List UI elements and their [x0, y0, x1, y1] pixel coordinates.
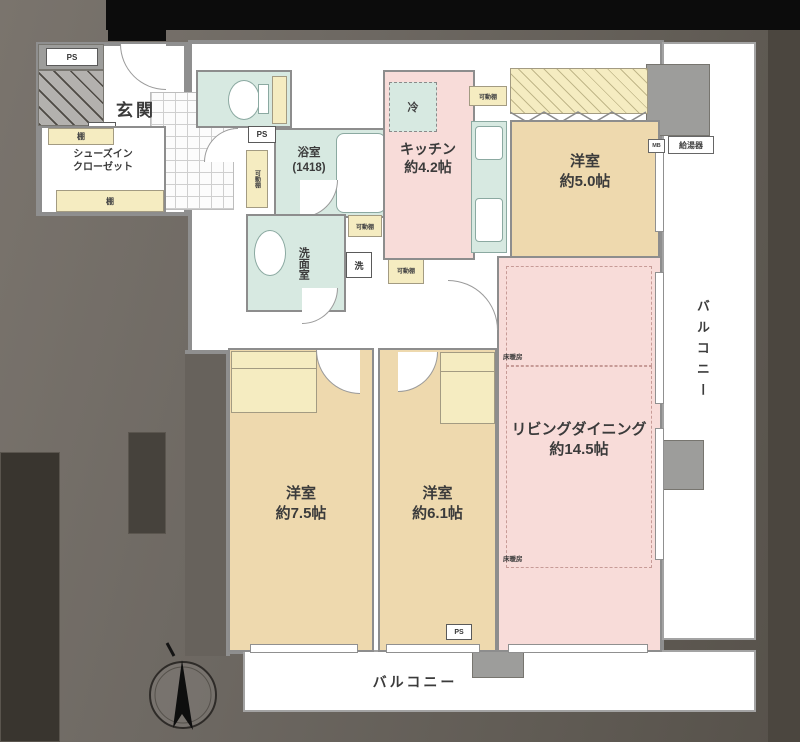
- ps-text: PS: [67, 53, 78, 62]
- bedroom5-text: 洋室: [570, 153, 600, 170]
- shelf-text: 棚: [106, 196, 114, 207]
- living-window-bottom: [508, 644, 648, 653]
- refrigerator-spot: 冷: [389, 82, 437, 132]
- movable-shelf-text: 可動棚: [356, 222, 374, 231]
- plan-left-cutout: [185, 350, 230, 656]
- shoe-closet-label: シューズイン クローゼット: [42, 148, 164, 174]
- movable-shelf-text: 可動棚: [479, 92, 497, 101]
- bedroom75-text: 洋室: [286, 485, 316, 502]
- floor-heating-text: 床暖房: [503, 556, 523, 563]
- water-heater-text: 給湯器: [679, 140, 703, 151]
- washer-spot: 洗: [346, 252, 372, 278]
- meter-box-label: MB: [648, 139, 665, 153]
- shoe-closet-shelf-top: 棚: [48, 128, 114, 145]
- bedroom61-size-text: 約6.1帖: [412, 505, 463, 522]
- bedroom75-size-text: 約7.5帖: [276, 505, 327, 522]
- washer-text: 洗: [354, 259, 363, 272]
- washroom-movable-shelf: 可動棚: [348, 215, 382, 237]
- bedroom5-closet: [510, 68, 648, 114]
- bedroom5-label: 洋室 約5.0帖: [512, 152, 658, 191]
- bedroom5-window: [655, 140, 664, 232]
- top-black-bar: [106, 0, 800, 30]
- bathroom-size-text: (1418): [292, 162, 325, 174]
- floor-heating-zone-lower: [506, 366, 652, 568]
- kitchen-size-text: 約4.2帖: [404, 159, 451, 175]
- living-window-right-lower: [655, 428, 664, 560]
- toilet-tank-icon: [258, 84, 269, 114]
- bedroom75-window: [250, 644, 358, 653]
- floor-plan-image: PS 玄関 PS 棚 棚 シューズイン クローゼット 浴室 (1418) PS …: [0, 0, 800, 742]
- shoe-closet-text: シューズイン クローゼット: [73, 149, 133, 173]
- ps-label-bath: PS: [248, 126, 276, 143]
- floor-heating-zone-upper: [506, 266, 652, 366]
- toilet-icon: [228, 80, 260, 120]
- living-dining-size-text: 約14.5帖: [549, 441, 608, 458]
- toilet-shelf: [272, 76, 287, 124]
- movable-shelf-text: 可動棚: [397, 266, 415, 275]
- living-dining-text: リビングダイニング: [511, 421, 646, 438]
- top-black-notch: [108, 28, 166, 41]
- photo-frame-left: [128, 432, 166, 534]
- balcony-bottom-text: バルコニー: [373, 674, 458, 690]
- photo-sign-left: [0, 452, 60, 742]
- kitchen-text: キッチン: [400, 141, 456, 157]
- entrance-label: 玄関: [100, 100, 172, 122]
- bedroom75-closet: [231, 351, 317, 413]
- ps-label-topleft: PS: [46, 48, 98, 66]
- kitchen-sink-icon: [475, 126, 503, 160]
- balcony-right-text: バルコニー: [695, 299, 710, 404]
- north-compass-icon: [143, 640, 227, 738]
- ps-text: PS: [257, 130, 268, 139]
- bathroom-label: 浴室 (1418): [278, 146, 340, 176]
- washbasin-icon: [254, 230, 286, 276]
- living-window-right-upper: [655, 272, 664, 404]
- floor-heating-label-lower: 床暖房: [503, 556, 537, 564]
- balcony-bottom-label: バルコニー: [330, 673, 500, 691]
- hall-movable-shelf: 可動棚: [246, 150, 268, 208]
- balcony-right-label: バルコニー: [693, 246, 710, 456]
- bathroom-text: 浴室: [298, 147, 321, 159]
- bedroom61-label: 洋室 約6.1帖: [380, 484, 495, 523]
- bedroom61-text: 洋室: [422, 485, 452, 502]
- entrance-text: 玄関: [116, 101, 156, 120]
- kitchen-stove-icon: [475, 198, 503, 242]
- water-heater-box: 給湯器: [668, 136, 714, 154]
- bathtub-icon: [336, 133, 386, 213]
- kitchen-label: キッチン 約4.2帖: [385, 140, 471, 176]
- bedroom5-size-text: 約5.0帖: [560, 173, 611, 190]
- mb-text: MB: [652, 143, 661, 149]
- floor-heating-text: 床暖房: [503, 354, 523, 361]
- exterior-slope-hatch: [38, 70, 104, 126]
- shelf-text: 棚: [77, 131, 85, 142]
- shoe-closet-shelf-bottom: 棚: [56, 190, 164, 212]
- bedroom61-closet: [440, 352, 495, 424]
- living-dining-label: リビングダイニング 約14.5帖: [498, 420, 660, 459]
- bedroom61-window: [386, 644, 480, 653]
- refrigerator-text: 冷: [408, 99, 419, 115]
- ps-label-bottom: PS: [446, 624, 472, 640]
- photo-right-strip: [768, 30, 800, 742]
- movable-shelf-text: 可動棚: [253, 170, 262, 188]
- floor-heating-label-upper: 床暖房: [503, 354, 537, 362]
- kitchen-top-movable-shelf: 可動棚: [469, 86, 507, 106]
- bedroom75-label: 洋室 約7.5帖: [230, 484, 372, 523]
- washroom-text: 洗面室: [297, 247, 309, 280]
- ps-text: PS: [454, 629, 463, 636]
- corridor-movable-shelf: 可動棚: [388, 256, 424, 284]
